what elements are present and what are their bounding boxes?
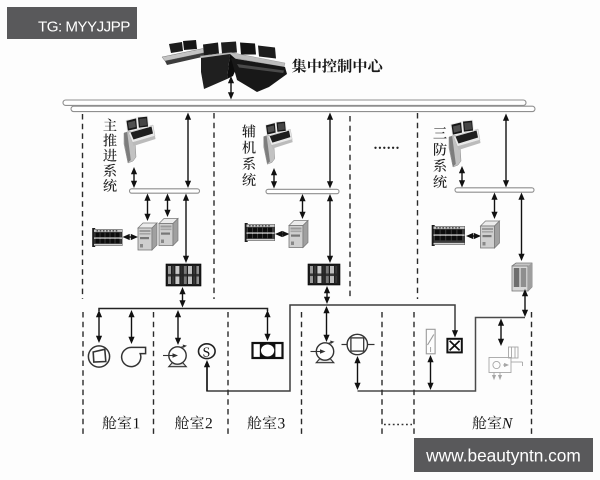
svg-text:TG: MYYJJPP: TG: MYYJJPP — [38, 19, 130, 36]
svg-text:www.beautyntn.com: www.beautyntn.com — [425, 446, 581, 466]
